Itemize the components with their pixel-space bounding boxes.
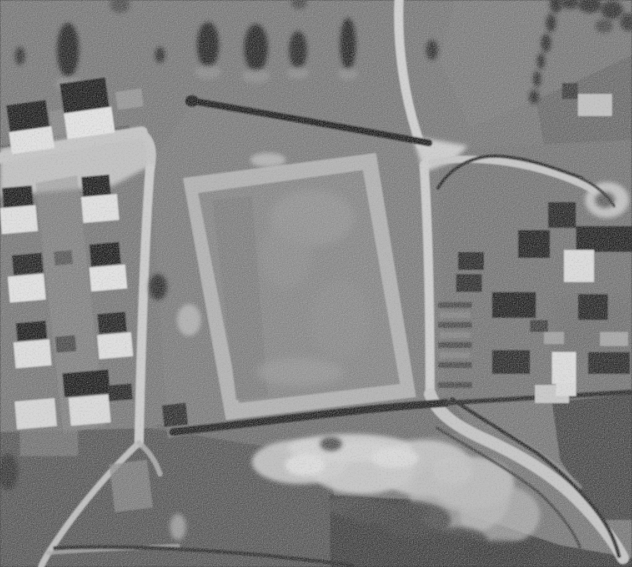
- aerial-photo: [0, 0, 632, 567]
- film-grain-dark: [0, 0, 632, 567]
- aerial-photo-frame: [0, 0, 632, 567]
